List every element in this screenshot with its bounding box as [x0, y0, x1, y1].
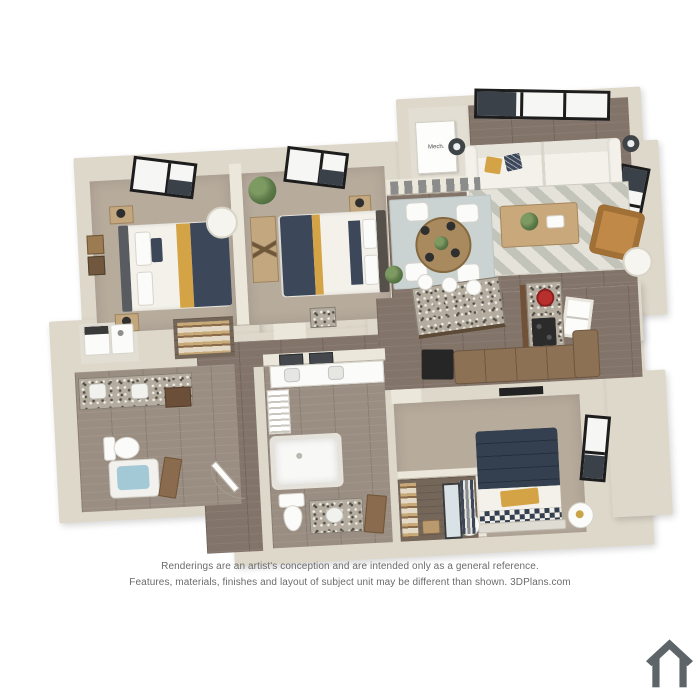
window-pane [319, 169, 344, 186]
bedroom2-dresser [250, 216, 279, 283]
closet-mirror [442, 482, 463, 539]
house-icon-right-leg [679, 657, 686, 687]
tv-console [422, 349, 454, 379]
closet-shelving [400, 483, 419, 538]
exterior-wall-master-wing [605, 370, 673, 518]
hallway-console [310, 307, 337, 328]
bed-duvet-navy [280, 215, 316, 297]
vanity-sink [328, 365, 345, 380]
dining-chair [455, 203, 479, 223]
dining-chair [405, 202, 429, 222]
sectional-chaise [572, 329, 600, 378]
bedroom2-bed [278, 210, 390, 298]
bathtub-water [117, 465, 150, 491]
window-pane [583, 455, 605, 479]
door-opening [273, 322, 306, 340]
washer [83, 325, 111, 356]
vanity-sink [130, 383, 149, 400]
bedroom2-window [283, 146, 349, 189]
door-opening [391, 388, 422, 404]
bedroom1-wall-art [88, 256, 106, 276]
bed-pillow [136, 271, 154, 306]
coffee-table [499, 202, 579, 248]
disclaimer-line1: Renderings are an artist's conception an… [0, 559, 700, 575]
house-icon [646, 634, 693, 690]
bed-pillow [364, 254, 380, 285]
master-bed [473, 427, 564, 531]
bed-duvet-navy [475, 427, 560, 489]
bedroom1-window [130, 156, 198, 200]
linen-shelves [267, 389, 291, 434]
sectional-sofa [453, 344, 583, 385]
stove-cooktop [531, 317, 556, 346]
vanity-sink [88, 383, 107, 400]
dryer [110, 323, 135, 354]
bed-pillow [362, 219, 378, 250]
coffee-table-book [546, 215, 565, 229]
mech-closet-label: Mech. [428, 144, 445, 151]
window-mullion [520, 92, 523, 116]
hanging-clothes [460, 480, 477, 535]
bed-accent-pillow [151, 238, 163, 263]
vanity-sink [284, 368, 301, 383]
closet-basket [422, 520, 441, 535]
sofa-pillow-mustard [484, 156, 502, 174]
window-pane [477, 92, 516, 117]
floorplan-3d-render: Mech. [16, 79, 685, 590]
window-mullion [566, 316, 588, 321]
hall-closet-shelving [177, 320, 231, 355]
living-room-top-window [474, 88, 611, 120]
bathroom2-door [364, 494, 387, 534]
bathtub [269, 433, 344, 491]
window-pane [166, 179, 192, 196]
bedroom1-wall-art [86, 235, 104, 255]
vanity-drawers [165, 386, 192, 407]
disclaimer: Renderings are an artist's conception an… [0, 559, 700, 591]
bed-pillow [134, 231, 152, 266]
house-icon-left-leg [652, 657, 659, 687]
window-mullion [563, 93, 566, 117]
disclaimer-line2: Features, materials, finishes and layout… [0, 575, 700, 591]
